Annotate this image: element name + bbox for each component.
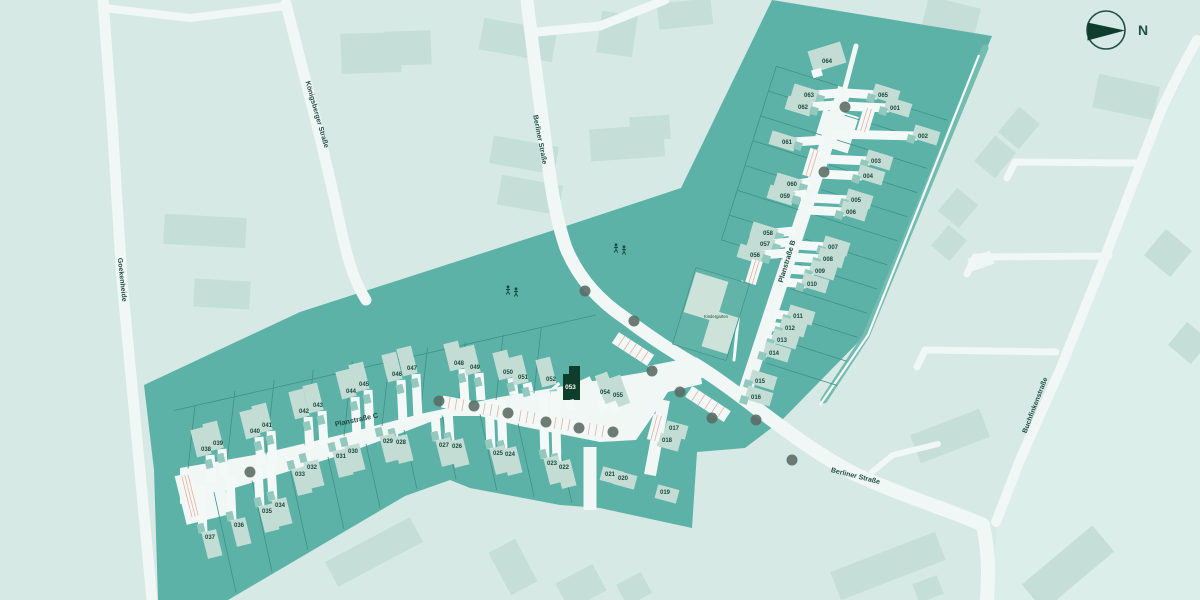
svg-text:N: N — [1138, 22, 1148, 38]
svg-text:028: 028 — [396, 440, 407, 446]
svg-text:033: 033 — [295, 472, 306, 478]
svg-text:043: 043 — [313, 403, 324, 409]
svg-text:038: 038 — [201, 447, 212, 453]
svg-text:055: 055 — [613, 393, 624, 399]
svg-text:009: 009 — [815, 269, 826, 275]
svg-text:034: 034 — [275, 503, 286, 509]
svg-text:031: 031 — [336, 454, 347, 460]
svg-text:023: 023 — [547, 461, 558, 467]
svg-text:Kindergarten: Kindergarten — [704, 314, 729, 319]
svg-text:041: 041 — [262, 423, 273, 429]
svg-text:010: 010 — [807, 282, 818, 288]
svg-text:008: 008 — [823, 257, 834, 263]
svg-text:029: 029 — [383, 439, 394, 445]
svg-text:016: 016 — [751, 395, 762, 401]
svg-text:042: 042 — [299, 409, 310, 415]
svg-text:053: 053 — [565, 384, 576, 391]
svg-text:018: 018 — [662, 438, 673, 444]
svg-text:021: 021 — [605, 472, 616, 478]
svg-text:022: 022 — [559, 465, 570, 471]
svg-text:046: 046 — [392, 372, 403, 378]
svg-text:002: 002 — [918, 134, 929, 140]
svg-text:045: 045 — [359, 382, 370, 388]
svg-text:027: 027 — [439, 443, 450, 449]
svg-text:003: 003 — [871, 159, 882, 165]
svg-text:013: 013 — [777, 338, 788, 344]
svg-text:062: 062 — [798, 105, 809, 111]
svg-text:063: 063 — [804, 93, 815, 99]
svg-text:056: 056 — [750, 253, 761, 259]
svg-text:050: 050 — [503, 370, 514, 376]
svg-text:017: 017 — [669, 426, 680, 432]
svg-text:032: 032 — [307, 465, 318, 471]
svg-text:014: 014 — [769, 351, 780, 357]
svg-text:019: 019 — [660, 490, 671, 496]
svg-text:061: 061 — [782, 140, 793, 146]
svg-text:015: 015 — [755, 379, 766, 385]
svg-text:052: 052 — [546, 377, 557, 383]
svg-text:054: 054 — [600, 390, 611, 396]
svg-text:049: 049 — [470, 365, 481, 371]
svg-text:012: 012 — [785, 326, 796, 332]
svg-text:035: 035 — [262, 509, 273, 515]
svg-text:065: 065 — [878, 93, 889, 99]
svg-text:039: 039 — [213, 441, 224, 447]
svg-text:025: 025 — [493, 451, 504, 457]
svg-text:001: 001 — [890, 106, 901, 112]
svg-text:044: 044 — [346, 389, 357, 395]
svg-text:048: 048 — [454, 361, 465, 367]
svg-text:007: 007 — [828, 245, 839, 251]
svg-text:047: 047 — [407, 366, 418, 372]
svg-text:011: 011 — [793, 314, 803, 320]
svg-text:040: 040 — [250, 429, 261, 435]
svg-text:058: 058 — [763, 231, 774, 237]
svg-text:030: 030 — [348, 449, 359, 455]
svg-text:064: 064 — [822, 59, 833, 65]
svg-text:026: 026 — [452, 444, 463, 450]
svg-text:060: 060 — [787, 182, 798, 188]
svg-text:051: 051 — [518, 375, 529, 381]
svg-text:036: 036 — [234, 523, 245, 529]
svg-text:005: 005 — [851, 198, 862, 204]
svg-text:059: 059 — [780, 194, 791, 200]
svg-text:057: 057 — [760, 242, 771, 248]
svg-text:020: 020 — [618, 476, 629, 482]
svg-text:006: 006 — [846, 210, 857, 216]
svg-text:004: 004 — [863, 174, 874, 180]
svg-text:037: 037 — [205, 535, 216, 541]
svg-text:024: 024 — [505, 452, 516, 458]
